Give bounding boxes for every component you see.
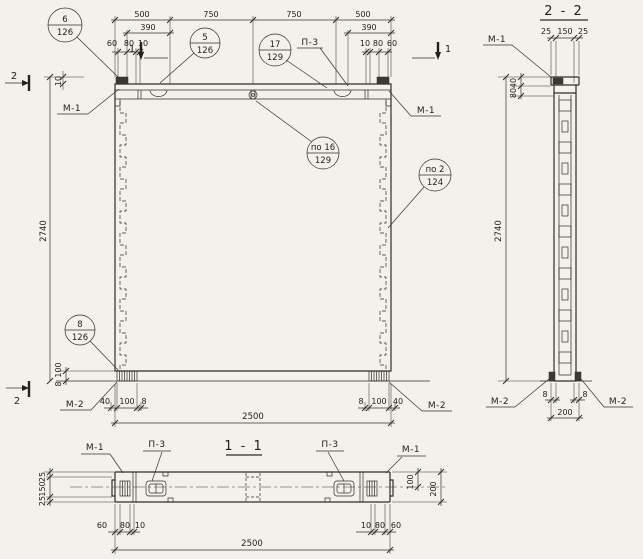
label-p3-top: П-3 — [301, 38, 318, 48]
dim-pad-left-100: 100 — [119, 397, 134, 406]
blueprint-sheet: 500 750 750 500 390 390 60 80 10 10 80 6… — [0, 0, 643, 559]
bearing-pad-left-hatch — [120, 371, 135, 381]
key — [562, 163, 568, 174]
callout-6-ref: 126 — [57, 28, 73, 38]
s22-label-m2-left: М-2 — [491, 397, 509, 407]
key — [559, 142, 571, 153]
s11-dim-2500: 2500 — [241, 539, 263, 549]
callout-6-num: 6 — [62, 15, 67, 25]
section-2-2: 2 - 2 25 150 25 40 80 274 — [483, 4, 633, 421]
key — [559, 100, 571, 111]
s22-underlines — [483, 45, 633, 407]
callout-leaders — [77, 37, 424, 371]
callout-17-ref: 129 — [267, 53, 283, 63]
section-1-1-title: 1 - 1 — [224, 439, 264, 454]
key — [562, 121, 568, 132]
dim-60-left: 60 — [107, 39, 117, 48]
dim-pad-right-100: 100 — [371, 397, 386, 406]
s11-embed-right-hatch — [370, 481, 375, 496]
section-2-2-keys — [559, 100, 571, 363]
front-dimensions: 500 750 750 500 390 390 60 80 10 10 80 6… — [39, 10, 403, 427]
label-leaders — [88, 48, 422, 411]
dim-10-right: 10 — [360, 39, 370, 48]
front-extension-lines — [44, 16, 395, 427]
dim-pad-left-8: 8 — [141, 397, 146, 406]
dim-pad-right-40: 40 — [393, 397, 403, 406]
front-dimension-lines — [50, 20, 400, 423]
marker-1-left-label: 1 — [129, 44, 135, 55]
s22-leaders — [512, 45, 604, 407]
marker-1-left-arrow — [138, 52, 144, 60]
key — [562, 331, 568, 342]
callout-po16-num: по 16 — [311, 143, 335, 153]
marker-2-top-label: 2 — [11, 71, 17, 82]
keyed-edge-left — [120, 101, 126, 371]
s11-dim-200: 200 — [429, 481, 438, 496]
marker-2-bottom-label: 2 — [14, 396, 20, 407]
s11-embed-left-hatch — [123, 481, 128, 496]
callout-17-num: 17 — [270, 40, 281, 50]
callout-8-ref: 126 — [72, 333, 88, 343]
s11-dim-60-left: 60 — [97, 521, 107, 530]
section-2-2-profile — [551, 77, 579, 381]
s11-label-p3-left: П-3 — [148, 440, 165, 450]
s22-dim-40: 40 — [509, 78, 518, 88]
dim-top-750-right: 750 — [286, 10, 301, 19]
s11-dim-80-right: 80 — [375, 521, 385, 530]
dim-390-left: 390 — [140, 23, 155, 32]
dim-width-2500: 2500 — [242, 412, 264, 422]
dim-pad-right-8: 8 — [358, 397, 363, 406]
label-m1-left: М-1 — [63, 104, 81, 114]
key — [562, 247, 568, 258]
front-view — [56, 77, 430, 381]
s11-dim-25-bottom: 25 — [38, 496, 47, 506]
callout-5-num: 5 — [202, 33, 207, 43]
key — [559, 184, 571, 195]
dim-80-right: 80 — [373, 39, 383, 48]
s11-dim-150: 150 — [38, 481, 47, 496]
key — [559, 310, 571, 321]
lifting-loop-center — [252, 94, 255, 97]
s11-dim-10-left: 10 — [135, 521, 145, 530]
key — [559, 352, 571, 363]
dim-top-offset-10: 10 — [54, 76, 63, 86]
s11-label-m1-left: М-1 — [86, 443, 104, 453]
dim-10-left: 10 — [138, 39, 148, 48]
s11-label-m1-right: М-1 — [402, 445, 420, 455]
section-markers: 1 1 2 2 — [5, 42, 451, 407]
key — [559, 226, 571, 237]
s22-dim-25-left: 25 — [541, 27, 551, 36]
callout-po16-ref: 129 — [315, 156, 331, 166]
callout-po2-ref: 124 — [427, 178, 443, 188]
key — [562, 289, 568, 300]
section-2-2-foot-right — [575, 372, 581, 381]
section-1-1: 1 - 1 25 150 25 100 200 60 80 10 10 80 6… — [38, 439, 447, 554]
section-2-2-title: 2 - 2 — [544, 4, 584, 19]
s22-dim-150: 150 — [557, 27, 572, 36]
s22-label-m1: М-1 — [488, 35, 506, 45]
lifting-loop-icon — [249, 91, 257, 99]
marker-1-right-arrow — [435, 52, 441, 60]
top-band-lines — [115, 90, 391, 106]
s11-dim-10-right: 10 — [361, 521, 371, 530]
section-2-2-inner — [559, 95, 571, 375]
s22-dim-80: 80 — [509, 88, 518, 98]
s11-dim-80-left: 80 — [120, 521, 130, 530]
section-2-2-foot-left — [549, 372, 555, 381]
label-m2-left: М-2 — [66, 400, 84, 410]
label-m1-right: М-1 — [417, 106, 435, 116]
callout-8-num: 8 — [77, 320, 82, 330]
front-labels: М-1 М-1 М-2 М-2 П-3 — [57, 38, 452, 411]
dim-height-2740: 2740 — [39, 220, 49, 242]
dim-pad-v-8: 8 — [54, 381, 63, 386]
s11-dim-lines — [50, 468, 441, 550]
label-m2-right: М-2 — [428, 401, 446, 411]
dim-390-right: 390 — [361, 23, 376, 32]
s11-dim-100: 100 — [406, 474, 415, 489]
front-dimension-ticks — [47, 17, 398, 426]
marker-1-right-label: 1 — [445, 44, 451, 55]
key — [559, 268, 571, 279]
dim-60-right: 60 — [387, 39, 397, 48]
s11-dim-60-right: 60 — [391, 521, 401, 530]
section-2-2-embed-plate — [553, 78, 563, 84]
s11-dim-25-top: 25 — [38, 472, 47, 482]
panel-drawing: 500 750 750 500 390 390 60 80 10 10 80 6… — [0, 0, 643, 559]
panel-outline — [115, 84, 391, 371]
key — [562, 205, 568, 216]
s22-dim-25-right: 25 — [578, 27, 588, 36]
dim-top-500-left: 500 — [134, 10, 149, 19]
s22-dim-2740: 2740 — [494, 220, 504, 242]
callout-po2-num: по 2 — [426, 165, 445, 175]
s22-label-m2-right: М-2 — [609, 397, 627, 407]
s22-dim-200: 200 — [557, 408, 572, 417]
bearing-pad-right-hatch — [372, 371, 387, 381]
s22-dim-8-right: 8 — [582, 390, 587, 399]
dim-top-500-right: 500 — [355, 10, 370, 19]
keyed-edge-right — [380, 101, 386, 371]
s11-label-p3-right: П-3 — [321, 440, 338, 450]
callout-5-ref: 126 — [197, 46, 213, 56]
label-underlines — [57, 48, 452, 411]
key-notch-arcs — [150, 90, 351, 97]
dim-pad-v-100: 100 — [54, 362, 63, 377]
dim-top-750-left: 750 — [203, 10, 218, 19]
s22-dim-8-left: 8 — [542, 390, 547, 399]
